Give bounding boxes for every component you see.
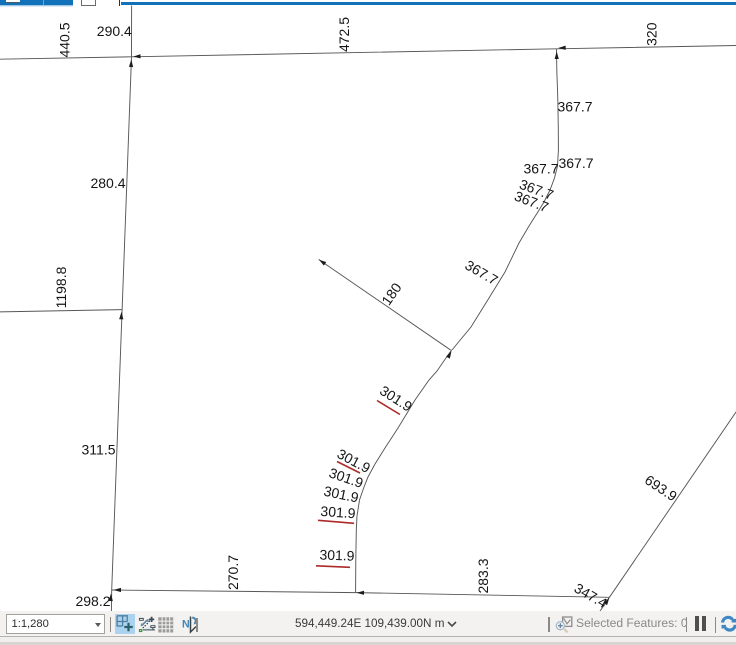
svg-text:301.9: 301.9: [319, 546, 355, 563]
svg-text:347.4: 347.4: [572, 580, 611, 611]
svg-text:693.9: 693.9: [642, 472, 680, 505]
svg-text:367.7: 367.7: [523, 160, 558, 176]
svg-text:367.7: 367.7: [557, 98, 592, 114]
svg-text:320: 320: [644, 22, 660, 46]
svg-text:290.4: 290.4: [97, 23, 132, 39]
svg-text:472.5: 472.5: [336, 17, 352, 52]
svg-text:280.4: 280.4: [90, 175, 125, 191]
svg-text:1198.8: 1198.8: [53, 266, 69, 308]
svg-text:270.7: 270.7: [225, 555, 241, 590]
svg-text:367.7: 367.7: [462, 257, 501, 288]
svg-text:283.3: 283.3: [475, 558, 491, 593]
svg-text:N: N: [182, 618, 190, 630]
svg-text:298.2: 298.2: [75, 593, 110, 609]
svg-text:180: 180: [378, 280, 405, 308]
svg-text:311.5: 311.5: [82, 441, 116, 457]
svg-text:301.9: 301.9: [320, 503, 356, 521]
svg-text:367.7: 367.7: [558, 155, 593, 171]
svg-text:440.5: 440.5: [56, 22, 72, 57]
